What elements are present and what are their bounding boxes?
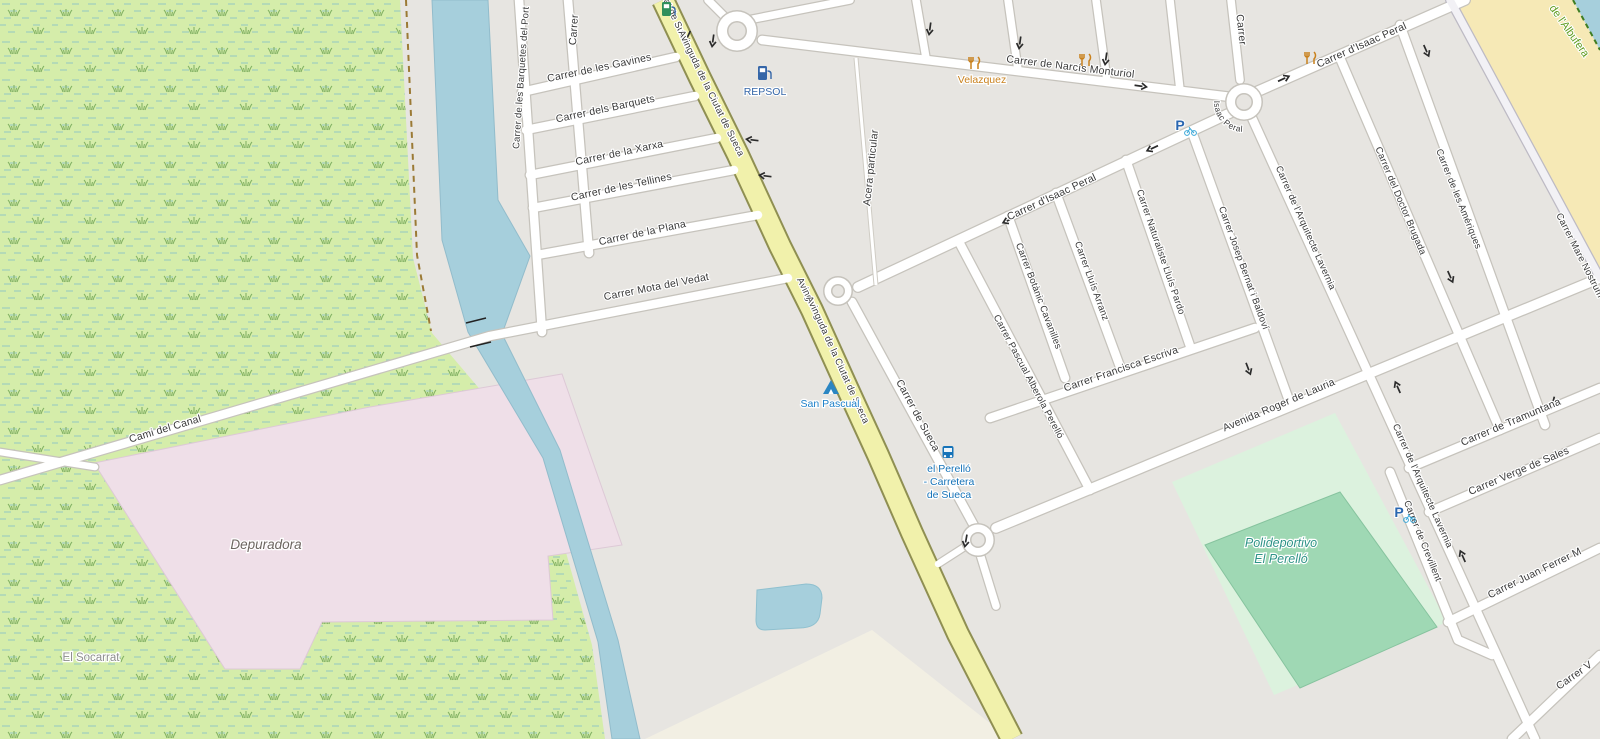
bus-stop-icon [943, 446, 954, 458]
place-label-polideportivo-1: Polideportivo [1245, 536, 1317, 550]
poi-label-san-pascual: San Pascual [801, 398, 860, 410]
poi-label-bus-stop-2: - Carretera [924, 476, 975, 488]
svg-text:P: P [1394, 504, 1403, 520]
poi-label-velazquez: Velazquez [958, 74, 1006, 86]
poi-label-bus-stop-3: de Sueca [927, 489, 972, 501]
poi-label-repsol: REPSOL [744, 86, 787, 98]
place-label-polideportivo-2: El Perelló [1254, 552, 1308, 566]
map-canvas[interactable]: Carrer de les Barquetes del Port Carrer … [0, 0, 1600, 739]
place-label-el-socarrat: El Socarrat [63, 652, 121, 664]
street-label-carrer-partial-left: Carrer [567, 14, 581, 46]
map-svg: Carrer de les Barquetes del Port Carrer … [0, 0, 1600, 739]
poi-label-bus-stop-1: el Perelló [927, 463, 971, 475]
svg-text:P: P [1175, 117, 1184, 133]
place-label-depuradora: Depuradora [230, 537, 302, 552]
pond-water [756, 584, 822, 630]
